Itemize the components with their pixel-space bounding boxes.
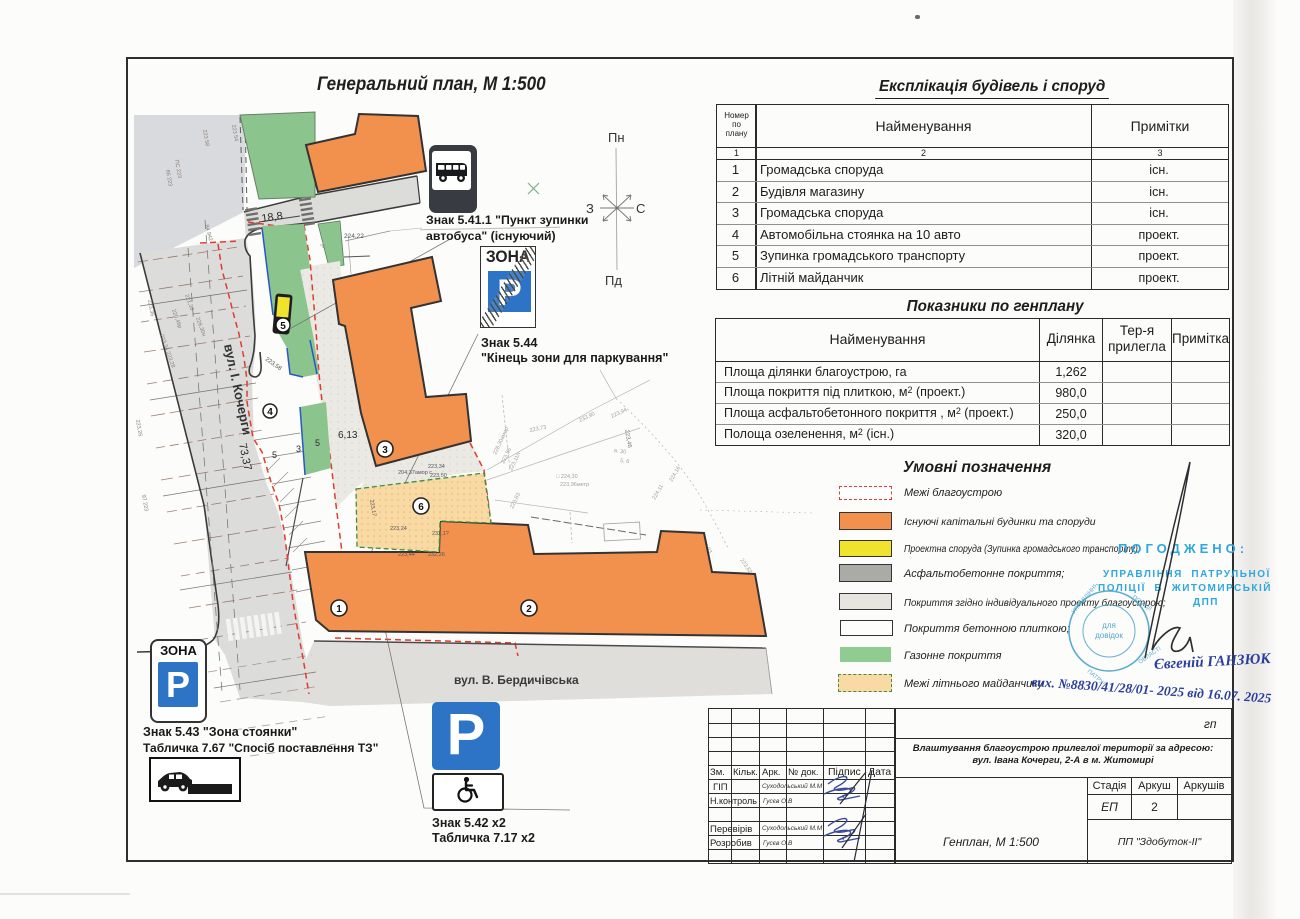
svg-text:224,11: 224,11 — [652, 484, 665, 501]
svg-text:232,1?: 232,1? — [432, 531, 449, 537]
svg-text:232,26: 232,26 — [428, 552, 445, 558]
svg-text:С: С — [636, 201, 645, 216]
svg-text:6: 6 — [418, 502, 424, 513]
svg-text:223,58: 223,58 — [264, 357, 283, 373]
svg-text:223,46: 223,46 — [623, 429, 632, 449]
svg-text:223,44: 223,44 — [398, 552, 415, 558]
svg-text:1: 1 — [336, 604, 342, 615]
svg-text:3: 3 — [296, 444, 301, 454]
svg-text:224,16: 224,16 — [669, 465, 683, 483]
svg-text:вул. В. Бердичівська: вул. В. Бердичівська — [454, 673, 579, 687]
svg-text:Пн: Пн — [608, 130, 625, 145]
svg-text:Пд: Пд — [605, 273, 622, 288]
svg-text:5: 5 — [272, 450, 277, 460]
svg-text:3: 3 — [382, 445, 388, 456]
svg-text:6,13: 6,13 — [338, 430, 358, 441]
svg-text:223,94: 223,94 — [610, 407, 628, 420]
svg-text:2: 2 — [526, 604, 532, 615]
svg-text:223,96метр: 223,96метр — [560, 482, 589, 488]
svg-text:5, 6: 5, 6 — [620, 458, 630, 465]
svg-text:□ 224,30: □ 224,30 — [556, 474, 578, 480]
svg-text:223,83: 223,83 — [509, 492, 522, 510]
svg-text:204,37амор с: 204,37амор с — [398, 470, 432, 476]
svg-text:97 223: 97 223 — [140, 494, 149, 512]
svg-text:5: 5 — [280, 321, 286, 332]
svg-text:223,50: 223,50 — [430, 473, 447, 479]
svg-text:224,22: 224,22 — [344, 233, 364, 240]
svg-text:4: 4 — [267, 407, 273, 418]
svg-text:223,73: 223,73 — [529, 425, 547, 434]
svg-text:223,34: 223,34 — [428, 464, 445, 470]
svg-text:223,24: 223,24 — [390, 526, 407, 532]
svg-text:223,26: 223,26 — [134, 419, 143, 437]
svg-text:233,90: 233,90 — [578, 411, 596, 424]
svg-text:5: 5 — [315, 438, 320, 448]
svg-text:в. 30: в. 30 — [614, 448, 627, 456]
